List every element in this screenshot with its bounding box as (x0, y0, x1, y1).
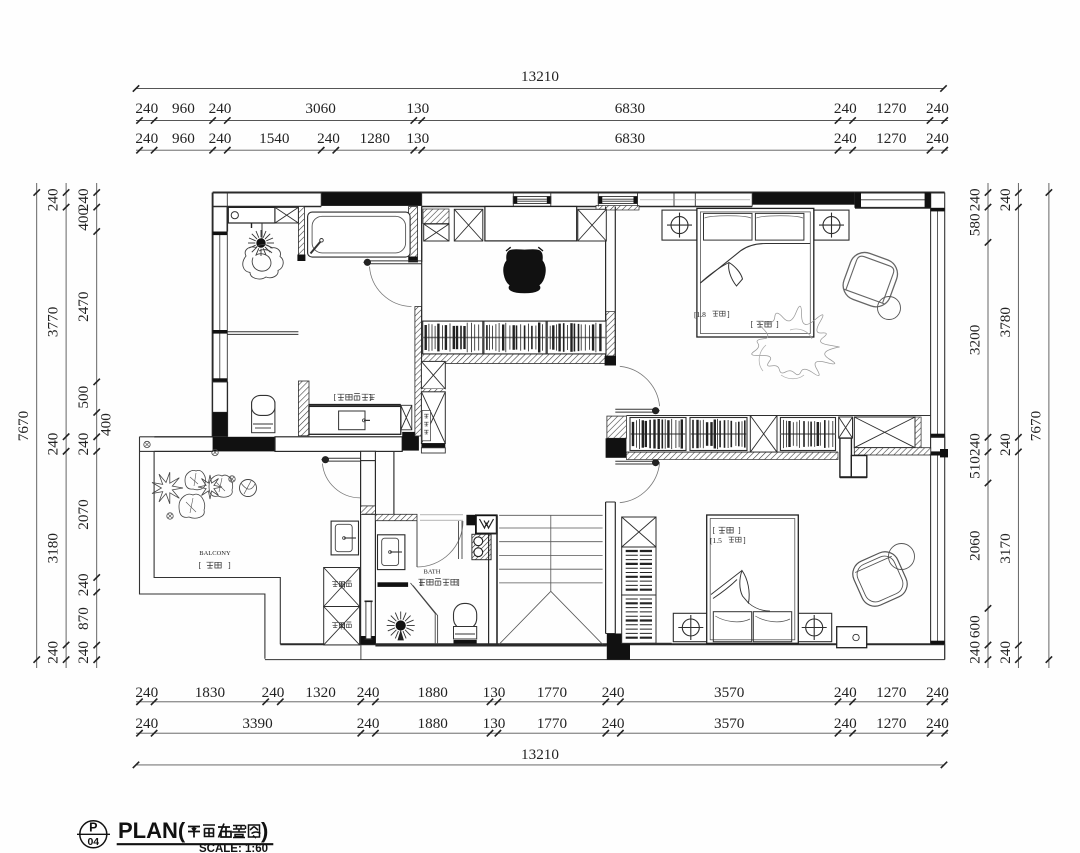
svg-text:1270: 1270 (876, 684, 907, 701)
svg-text:240: 240 (135, 130, 158, 147)
svg-text:580: 580 (967, 213, 984, 236)
svg-text:240: 240 (602, 715, 625, 732)
svg-text:1270: 1270 (876, 100, 907, 117)
svg-text:500: 500 (75, 385, 92, 408)
svg-text:600: 600 (967, 615, 984, 638)
svg-text:13210: 13210 (521, 746, 559, 763)
svg-text:PLAN(: PLAN( (118, 818, 186, 843)
svg-text:1320: 1320 (305, 684, 336, 701)
svg-text:130: 130 (483, 715, 506, 732)
svg-text:240: 240 (45, 432, 62, 455)
svg-text:240: 240 (262, 684, 285, 701)
svg-text:240: 240 (75, 641, 92, 664)
svg-text:240: 240 (135, 715, 158, 732)
svg-text:240: 240 (357, 715, 380, 732)
svg-text:240: 240 (967, 188, 984, 211)
svg-text:SCALE: 1:60: SCALE: 1:60 (199, 843, 268, 853)
svg-text:1770: 1770 (537, 684, 568, 701)
svg-text:400: 400 (75, 208, 92, 231)
svg-text:240: 240 (135, 100, 158, 117)
svg-text:240: 240 (45, 641, 62, 664)
svg-text:3770: 3770 (45, 306, 62, 337)
svg-text:240: 240 (997, 188, 1014, 211)
svg-text:240: 240 (834, 684, 857, 701)
svg-text:240: 240 (75, 432, 92, 455)
svg-text:240: 240 (75, 188, 92, 211)
svg-text:510: 510 (967, 456, 984, 479)
svg-text:1830: 1830 (195, 684, 226, 701)
svg-text:240: 240 (75, 573, 92, 596)
svg-text:]: ] (457, 578, 460, 587)
svg-text:1770: 1770 (537, 715, 568, 732)
svg-text:240: 240 (926, 100, 949, 117)
svg-text:960: 960 (172, 130, 195, 147)
svg-text:[1.5: [1.5 (710, 536, 722, 545)
svg-text:240: 240 (317, 130, 340, 147)
svg-text:[: [ (713, 526, 716, 535)
svg-text:[: [ (334, 393, 337, 402)
svg-text:240: 240 (209, 130, 232, 147)
svg-text:BALCONY: BALCONY (199, 550, 231, 557)
svg-text:400: 400 (98, 413, 115, 436)
svg-text:240: 240 (926, 684, 949, 701)
svg-text:240: 240 (834, 130, 857, 147)
svg-text:BATH: BATH (424, 569, 441, 576)
svg-text:240: 240 (602, 684, 625, 701)
svg-text:240: 240 (926, 715, 949, 732)
svg-text:1270: 1270 (876, 715, 907, 732)
svg-text:2060: 2060 (967, 530, 984, 561)
svg-text:1280: 1280 (360, 130, 391, 147)
svg-text:130: 130 (483, 684, 506, 701)
svg-text:3060: 3060 (305, 100, 336, 117)
svg-text:6830: 6830 (615, 100, 646, 117)
svg-text:]: ] (738, 526, 741, 535)
svg-text:2070: 2070 (75, 499, 92, 530)
svg-text:240: 240 (926, 130, 949, 147)
svg-text:3570: 3570 (714, 684, 745, 701)
svg-text:240: 240 (834, 715, 857, 732)
svg-text:240: 240 (967, 641, 984, 664)
svg-text:240: 240 (357, 684, 380, 701)
svg-text:]: ] (727, 310, 730, 319)
svg-text:): ) (261, 818, 268, 843)
svg-text:240: 240 (834, 100, 857, 117)
svg-text:3570: 3570 (714, 715, 745, 732)
svg-text:240: 240 (45, 188, 62, 211)
svg-text:130: 130 (406, 100, 429, 117)
svg-text:[1.8: [1.8 (694, 310, 706, 319)
svg-text:1540: 1540 (259, 130, 290, 147)
svg-text:6830: 6830 (615, 130, 646, 147)
svg-text:]: ] (228, 561, 231, 570)
svg-text:]: ] (343, 581, 345, 589)
svg-text:240: 240 (135, 684, 158, 701)
svg-text:240: 240 (997, 433, 1014, 456)
svg-text:2470: 2470 (75, 291, 92, 322)
svg-text:1880: 1880 (418, 715, 449, 732)
svg-text:04: 04 (87, 836, 99, 848)
svg-text:[: [ (199, 561, 202, 570)
svg-text:240: 240 (997, 641, 1014, 664)
svg-text:1270: 1270 (876, 130, 907, 147)
svg-text:3180: 3180 (45, 533, 62, 564)
svg-text:]: ] (776, 320, 779, 329)
svg-text:]: ] (343, 622, 345, 630)
svg-text:7670: 7670 (1027, 410, 1044, 441)
svg-text:130: 130 (406, 130, 429, 147)
svg-text:240: 240 (967, 433, 984, 456)
svg-text:3780: 3780 (997, 307, 1014, 338)
svg-text:7670: 7670 (15, 410, 32, 441)
svg-text:3170: 3170 (997, 533, 1014, 564)
svg-text:]: ] (743, 536, 746, 545)
svg-text:1880: 1880 (418, 684, 449, 701)
svg-text:3200: 3200 (967, 324, 984, 355)
svg-text:870: 870 (75, 607, 92, 630)
svg-text:240: 240 (209, 100, 232, 117)
svg-text:P: P (89, 821, 97, 835)
svg-text:960: 960 (172, 100, 195, 117)
svg-text:3390: 3390 (242, 715, 273, 732)
svg-text:[: [ (751, 320, 754, 329)
svg-text:13210: 13210 (521, 68, 559, 85)
